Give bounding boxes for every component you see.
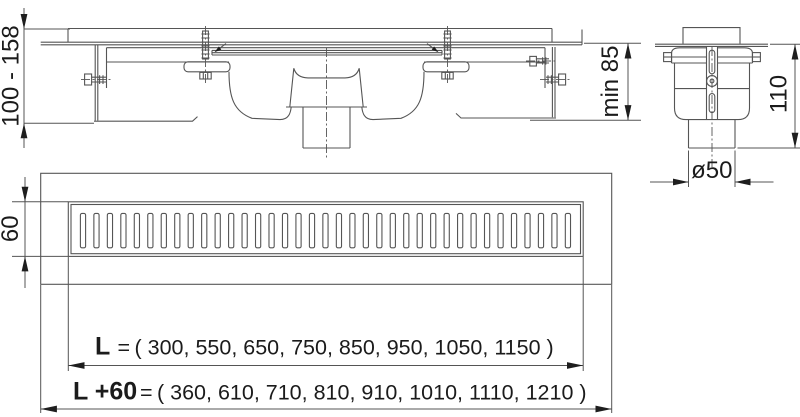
leg-foot-left bbox=[94, 117, 198, 122]
trap-ear-right bbox=[718, 48, 753, 63]
grate-slot bbox=[229, 213, 234, 247]
overall-length-equals: = bbox=[140, 381, 153, 405]
grate-slot bbox=[148, 213, 153, 247]
grate-slot bbox=[485, 213, 490, 247]
overall-length-values: ( 360, 610, 710, 810, 910, 1010, 1110, 1… bbox=[157, 381, 587, 405]
grate-slot bbox=[350, 213, 355, 247]
grate-slot bbox=[552, 213, 557, 247]
trap-end-view bbox=[655, 28, 768, 167]
flange-line bbox=[655, 44, 768, 46]
length-label: L bbox=[95, 333, 110, 361]
adjustment-screw-right bbox=[442, 26, 453, 84]
grate-slot bbox=[390, 213, 395, 247]
grate-slot bbox=[323, 213, 328, 247]
grate-width-label: 60 bbox=[0, 215, 24, 242]
trap-height-label: 110 bbox=[766, 75, 793, 113]
trap-ear-left bbox=[672, 48, 707, 63]
leg-foot-right bbox=[456, 113, 556, 118]
grate-slot bbox=[417, 213, 422, 247]
grate-slot bbox=[242, 213, 247, 247]
dim-grate-width: 60 bbox=[0, 177, 68, 288]
grate-slot bbox=[107, 213, 112, 247]
technical-drawing: 100 - 158 min 85 110 ø50 60 L = ( 300, 5… bbox=[0, 0, 800, 417]
grate-slot bbox=[363, 213, 368, 247]
grate-slot bbox=[498, 213, 503, 247]
pipe-diameter-label: ø50 bbox=[691, 157, 732, 184]
grate-slot bbox=[309, 213, 314, 247]
grate-slot bbox=[175, 213, 180, 247]
grate-slot bbox=[282, 213, 287, 247]
grate-slot bbox=[336, 213, 341, 247]
grate-slot bbox=[188, 213, 193, 247]
grate-slot bbox=[256, 213, 261, 247]
dim-trap-height: 110 bbox=[738, 44, 800, 148]
grate-slot bbox=[121, 213, 126, 247]
drawing-canvas: 100 - 158 min 85 110 ø50 60 L = ( 300, 5… bbox=[0, 0, 800, 417]
grate-slot bbox=[431, 213, 436, 247]
length-equals: = bbox=[118, 336, 131, 360]
grate-edge-band bbox=[212, 50, 442, 55]
grate-slot bbox=[134, 213, 139, 247]
grate-slot bbox=[202, 213, 207, 247]
grate-slot bbox=[511, 213, 516, 247]
grate-slot bbox=[215, 213, 220, 247]
plan-view bbox=[41, 173, 612, 284]
grate-slot bbox=[161, 213, 166, 247]
min-depth-label: min 85 bbox=[597, 45, 624, 117]
length-values: ( 300, 550, 650, 750, 850, 950, 1050, 11… bbox=[135, 336, 554, 360]
tub-pocket-left bbox=[229, 72, 291, 120]
grate-slot bbox=[458, 213, 463, 247]
grate-slot bbox=[525, 213, 530, 247]
grate-slot bbox=[269, 213, 274, 247]
grate-slot bbox=[444, 213, 449, 247]
dim-length: L = ( 300, 550, 650, 750, 850, 950, 1050… bbox=[68, 257, 583, 371]
grate-slot bbox=[377, 213, 382, 247]
grate-slot bbox=[471, 213, 476, 247]
adjustment-screw-left bbox=[200, 26, 211, 84]
grate-slot bbox=[565, 213, 570, 247]
grate-slot bbox=[94, 213, 99, 247]
grate-slots bbox=[80, 213, 570, 247]
front-section-view bbox=[41, 26, 582, 158]
grate-slot bbox=[404, 213, 409, 247]
height-range-label: 100 - 158 bbox=[0, 25, 25, 126]
trap-tub-section bbox=[229, 48, 424, 158]
channel-wing-right bbox=[423, 62, 469, 72]
support-leg-left bbox=[81, 45, 198, 121]
leg-plate-left bbox=[95, 45, 98, 121]
grate-slot bbox=[538, 213, 543, 247]
wall-sleeve-box bbox=[683, 28, 740, 44]
channel-wing-left bbox=[184, 62, 230, 72]
grate-slot bbox=[80, 213, 85, 247]
support-leg-right bbox=[456, 47, 571, 118]
tub-pocket-right bbox=[362, 72, 424, 120]
overall-length-label: L +60 bbox=[73, 378, 137, 406]
grate-slot bbox=[296, 213, 301, 247]
